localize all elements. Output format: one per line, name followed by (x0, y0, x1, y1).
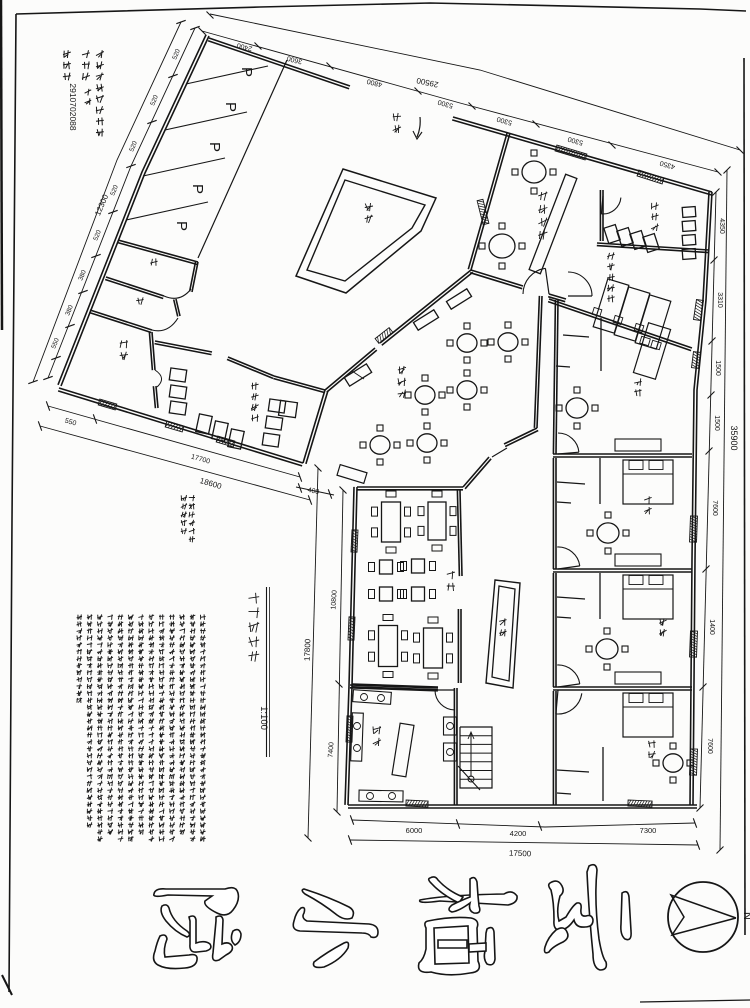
svg-text:P: P (173, 221, 190, 231)
svg-text:4200: 4200 (510, 829, 527, 838)
svg-text:7300: 7300 (640, 826, 657, 835)
svg-text:2910702088: 2910702088 (68, 83, 78, 131)
svg-text:P: P (189, 184, 206, 194)
svg-text:17500: 17500 (509, 849, 532, 859)
svg-text:6000: 6000 (406, 826, 423, 835)
svg-text:P: P (238, 67, 255, 77)
svg-text:7600: 7600 (711, 500, 718, 516)
svg-text:P: P (206, 142, 223, 152)
svg-text:P: P (222, 102, 239, 112)
svg-text:4350: 4350 (718, 218, 725, 234)
svg-text:7400: 7400 (327, 742, 335, 758)
svg-text:1:100: 1:100 (258, 706, 269, 730)
svg-text:10800: 10800 (330, 590, 338, 610)
svg-text:N: N (741, 912, 750, 920)
svg-text:1400: 1400 (708, 619, 715, 635)
svg-text:3310: 3310 (716, 292, 723, 308)
svg-text:1500: 1500 (713, 415, 720, 431)
svg-text:7600: 7600 (706, 738, 713, 754)
svg-text:35900: 35900 (729, 425, 739, 450)
svg-text:1500: 1500 (714, 360, 721, 376)
svg-text:17800: 17800 (303, 638, 313, 661)
